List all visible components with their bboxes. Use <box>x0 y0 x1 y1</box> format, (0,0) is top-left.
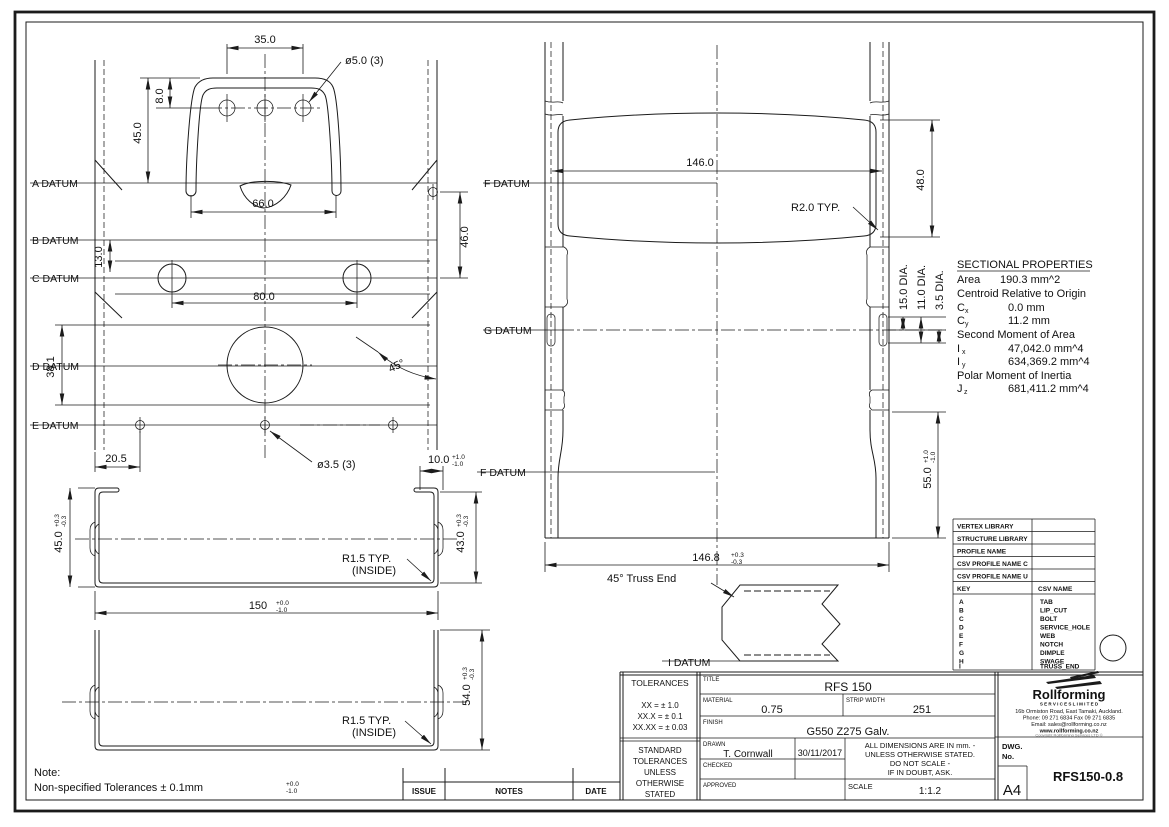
svg-text:I: I <box>957 343 960 355</box>
tolerances-header: TOLERANCES <box>631 678 689 688</box>
svg-text:A: A <box>959 599 964 606</box>
scale-label: SCALE <box>848 782 873 791</box>
svg-text:-0.3: -0.3 <box>463 515 470 527</box>
svg-text:Area: Area <box>957 274 981 286</box>
svg-text:TOLERANCES: TOLERANCES <box>633 757 687 766</box>
svg-text:C: C <box>957 315 965 327</box>
approved-label: APPROVED <box>703 783 737 789</box>
svg-text:R1.5 TYP.: R1.5 TYP. <box>342 553 391 565</box>
title-value: RFS 150 <box>824 680 872 694</box>
vertex-library-table: VERTEX LIBRARY STRUCTURE LIBRARY PROFILE… <box>953 519 1126 671</box>
dim-lip: 10.0 +1.0 -1.0 <box>420 454 465 490</box>
svg-text:-1.0: -1.0 <box>286 788 298 795</box>
logo-subtitle: S E R V I C E S L I M I T E D <box>1040 702 1099 707</box>
truss-end-label: 45° Truss End <box>607 573 676 585</box>
svg-text:G: G <box>959 650 964 657</box>
drawn-label: DRAWN <box>703 742 725 748</box>
svg-text:-1.0: -1.0 <box>452 461 464 468</box>
svg-text:+1.0: +1.0 <box>923 450 930 463</box>
title-label: TITLE <box>703 677 719 683</box>
svg-text:R2.0 TYP.: R2.0 TYP. <box>791 202 840 214</box>
logo-email: Email: sales@rollforming.co.nz <box>1031 722 1107 728</box>
datum-g-label: G DATUM <box>484 325 532 337</box>
svg-text:B: B <box>959 608 964 615</box>
svg-text:Note:: Note: <box>34 767 60 779</box>
svg-text:13.0: 13.0 <box>93 246 105 267</box>
svg-text:Polar Moment of Inertia: Polar Moment of Inertia <box>957 370 1072 382</box>
svg-text:+0.3: +0.3 <box>731 552 744 559</box>
logo-address: 16b Ormiston Road, East Tamaki, Auckland… <box>1015 709 1123 715</box>
svg-text:STATED: STATED <box>645 790 676 799</box>
svg-text:+0.3: +0.3 <box>54 514 61 527</box>
svg-text:CSV PROFILE NAME U: CSV PROFILE NAME U <box>957 574 1028 581</box>
finish-value: G550 Z275 Galv. <box>807 726 890 738</box>
datum-f-top-label: F DATUM <box>484 178 530 190</box>
svg-text:SERVICE_HOLE: SERVICE_HOLE <box>1040 625 1091 632</box>
strip-width-label: STRIP WIDTH <box>846 698 885 704</box>
svg-text:CSV PROFILE NAME C: CSV PROFILE NAME C <box>957 561 1028 568</box>
svg-text:R1.5 TYP.: R1.5 TYP. <box>342 715 391 727</box>
drawn-value: T. Cornwall <box>723 749 772 760</box>
svg-text:DIMPLE: DIMPLE <box>1040 650 1065 657</box>
svg-text:45°: 45° <box>387 357 407 375</box>
formed-profile-view: 146.0 F DATUM R2.0 TYP. 48.0 G DATUM 15.… <box>420 42 946 585</box>
dim-tab-height: 45.0 <box>132 78 148 183</box>
dwg-number: RFS150-0.8 <box>1053 769 1123 784</box>
hole-callout-bottom: ø3.5 (3) <box>270 431 356 471</box>
svg-text:DO NOT SCALE -: DO NOT SCALE - <box>890 759 951 768</box>
svg-text:IF IN DOUBT, ASK.: IF IN DOUBT, ASK. <box>888 768 953 777</box>
svg-text:E: E <box>959 633 964 640</box>
svg-text:XX.X = ± 0.1: XX.X = ± 0.1 <box>637 712 683 721</box>
svg-text:NOTCH: NOTCH <box>1040 642 1063 649</box>
svg-text:XX.XX = ± 0.03: XX.XX = ± 0.03 <box>633 723 688 732</box>
svg-text:D: D <box>959 625 964 632</box>
svg-text:J: J <box>957 383 963 395</box>
svg-text:y: y <box>965 321 969 328</box>
logo-copyright: Copyright Rollforming Services LTD © <box>1035 733 1102 738</box>
svg-text:STRUCTURE LIBRARY: STRUCTURE LIBRARY <box>957 536 1028 543</box>
svg-text:66.0: 66.0 <box>252 198 273 210</box>
company-logo: Rollforming S E R V I C E S L I M I T E … <box>1015 671 1123 738</box>
svg-text:80.0: 80.0 <box>253 291 274 303</box>
svg-text:(INSIDE): (INSIDE) <box>352 565 396 577</box>
svg-text:BOLT: BOLT <box>1040 616 1057 623</box>
svg-text:10.0: 10.0 <box>428 454 449 466</box>
svg-text:-1.0: -1.0 <box>276 607 288 614</box>
finish-label: FINISH <box>703 720 723 726</box>
svg-text:OTHERWISE: OTHERWISE <box>636 779 684 788</box>
scale-value: 1:1.2 <box>919 786 942 797</box>
svg-text:190.3 mm^2: 190.3 mm^2 <box>1000 274 1060 286</box>
service-hole <box>105 325 430 405</box>
svg-text:+0.0: +0.0 <box>276 600 289 607</box>
svg-text:I: I <box>957 356 960 368</box>
svg-text:TRUSS_END: TRUSS_END <box>1040 664 1080 671</box>
svg-text:WEB: WEB <box>1040 633 1055 640</box>
dim-tab-hole-offset: 8.0 <box>140 78 208 108</box>
datum-f-bottom-label: F DATUM <box>480 467 526 479</box>
svg-text:54.0: 54.0 <box>461 684 473 705</box>
svg-text:F: F <box>959 642 963 649</box>
dim-section-height-right: 43.0 +0.3 -0.3 <box>440 492 482 583</box>
dia-mid-label: 11.0 DIA. <box>916 265 928 310</box>
datum-i-label: I DATUM <box>668 657 710 669</box>
datum-c-label: C DATUM <box>32 273 79 285</box>
datum-e-label: E DATUM <box>32 420 78 432</box>
svg-text:48.0: 48.0 <box>915 169 927 190</box>
svg-text:KEY: KEY <box>957 586 971 593</box>
truss-end-detail: 45° Truss End I DATUM <box>607 573 840 669</box>
svg-text:35.0: 35.0 <box>254 34 275 46</box>
section-view-shallow: 45.0 +0.3 -0.3 43.0 +0.3 -0.3 R1.5 TYP. … <box>53 488 482 620</box>
sheet-size: A4 <box>1003 782 1021 799</box>
radius-callout: R2.0 TYP. <box>791 202 878 230</box>
svg-text:150: 150 <box>249 600 267 612</box>
svg-text:0.0 mm: 0.0 mm <box>1008 302 1045 314</box>
svg-text:+0.3: +0.3 <box>462 667 469 680</box>
logo-phone: Phone: 09 271 6834 Fax 09 271 6835 <box>1023 716 1115 722</box>
sheet-border <box>15 12 1154 811</box>
svg-text:STANDARD: STANDARD <box>638 746 682 755</box>
dim-a-to-c: 46.0 <box>429 184 472 278</box>
dim-bottom-height: 55.0 +1.0 -1.0 <box>892 412 946 538</box>
dia-inner-label: 3.5 DIA. <box>934 270 946 310</box>
svg-text:TAB: TAB <box>1040 599 1053 606</box>
issue-header: ISSUE <box>412 787 437 796</box>
section-view-deep: 54.0 +0.3 -0.3 R1.5 TYP. (INSIDE) <box>62 630 490 750</box>
svg-text:(INSIDE): (INSIDE) <box>352 727 396 739</box>
dim-bolt-spacing: 80.0 <box>172 291 357 308</box>
svg-text:PROFILE NAME: PROFILE NAME <box>957 549 1007 556</box>
svg-text:55.0: 55.0 <box>922 467 934 488</box>
angle-dim: 45° <box>356 337 436 379</box>
svg-text:I: I <box>959 664 961 671</box>
svg-text:-0.3: -0.3 <box>469 668 476 680</box>
props-title: SECTIONAL PROPERTIES <box>957 259 1093 271</box>
svg-text:UNLESS OTHERWISE STATED.: UNLESS OTHERWISE STATED. <box>865 750 975 759</box>
flat-pattern-view: A DATUM B DATUM C DATUM D DATUM E DATUM … <box>30 34 471 472</box>
svg-text:VERTEX LIBRARY: VERTEX LIBRARY <box>957 524 1014 531</box>
general-note: Note: Non-specified Tolerances ± 0.1mm +… <box>34 767 299 795</box>
svg-text:45.0: 45.0 <box>132 122 144 143</box>
svg-text:-0.3: -0.3 <box>731 559 743 566</box>
logo-name: Rollforming <box>1033 687 1106 702</box>
svg-text:+0.3: +0.3 <box>456 514 463 527</box>
issue-strip: ISSUE NOTES DATE <box>403 768 620 800</box>
dim-b-to-c: 13.0 <box>93 240 110 272</box>
svg-text:z: z <box>964 389 968 396</box>
svg-text:C: C <box>959 616 964 623</box>
svg-text:y: y <box>962 362 966 369</box>
datum-b-label: B DATUM <box>32 235 78 247</box>
svg-text:Second Moment of Area: Second Moment of Area <box>957 329 1076 341</box>
drawn-date: 30/11/2017 <box>798 748 842 758</box>
svg-text:8.0: 8.0 <box>154 88 166 103</box>
svg-text:38.1: 38.1 <box>45 356 57 377</box>
svg-text:47,042.0 mm^4: 47,042.0 mm^4 <box>1008 343 1083 355</box>
svg-text:Non-specified Tolerances ± 0.1: Non-specified Tolerances ± 0.1mm <box>34 782 203 794</box>
svg-text:ALL DIMENSIONS ARE IN mm. -: ALL DIMENSIONS ARE IN mm. - <box>865 741 976 750</box>
svg-text:681,411.2 mm^4: 681,411.2 mm^4 <box>1008 383 1089 395</box>
dimple-dia-dims: 15.0 DIA. 11.0 DIA. 3.5 DIA. <box>888 264 946 343</box>
svg-text:46.0: 46.0 <box>459 226 471 247</box>
svg-text:UNLESS: UNLESS <box>644 768 676 777</box>
dim-tab-width: 66.0 <box>191 195 336 218</box>
svg-text:Centroid Relative to Origin: Centroid Relative to Origin <box>957 288 1086 300</box>
svg-text:11.2 mm: 11.2 mm <box>1008 315 1050 327</box>
radius-callout-shallow: R1.5 TYP. (INSIDE) <box>342 553 431 581</box>
dim-section-width: 150 +0.0 -1.0 <box>95 591 438 620</box>
tab-holes <box>208 94 322 122</box>
material-value: 0.75 <box>761 704 782 716</box>
datum-a-label: A DATUM <box>32 178 78 190</box>
svg-text:43.0: 43.0 <box>455 531 467 552</box>
dim-edge-hole: 20.5 <box>95 431 140 472</box>
svg-text:LIP_CUT: LIP_CUT <box>1040 608 1067 615</box>
svg-text:ø3.5 (3): ø3.5 (3) <box>317 459 356 471</box>
svg-text:634,369.2 mm^4: 634,369.2 mm^4 <box>1008 356 1090 368</box>
svg-text:20.5: 20.5 <box>105 453 126 465</box>
svg-text:ø5.0 (3): ø5.0 (3) <box>345 55 384 67</box>
radius-callout-deep: R1.5 TYP. (INSIDE) <box>342 715 431 744</box>
svg-text:-0.3: -0.3 <box>61 515 68 527</box>
date-header: DATE <box>585 787 607 796</box>
svg-text:+1.0: +1.0 <box>452 454 465 461</box>
svg-text:146.8: 146.8 <box>692 552 720 564</box>
strip-width-value: 251 <box>913 704 931 716</box>
drawing-sheet: A DATUM B DATUM C DATUM D DATUM E DATUM … <box>0 0 1169 827</box>
dia-outer-label: 15.0 DIA. <box>898 264 910 310</box>
svg-text:-1.0: -1.0 <box>930 451 937 463</box>
svg-text:x: x <box>962 349 966 356</box>
dim-section-height-deep: 54.0 +0.3 -0.3 <box>440 630 490 750</box>
svg-text:45.0: 45.0 <box>53 531 65 552</box>
svg-text:146.0: 146.0 <box>686 157 714 169</box>
material-label: MATERIAL <box>703 698 733 704</box>
dim-section-height-left: 45.0 +0.3 -0.3 <box>53 488 95 587</box>
svg-text:No.: No. <box>1002 752 1014 761</box>
notes-header: NOTES <box>495 787 523 796</box>
checked-label: CHECKED <box>703 763 733 769</box>
dwg-label: DWG. <box>1002 742 1022 751</box>
engineering-drawing-canvas: A DATUM B DATUM C DATUM D DATUM E DATUM … <box>0 0 1169 827</box>
svg-text:+0.0: +0.0 <box>286 781 299 788</box>
svg-text:XX = ± 1.0: XX = ± 1.0 <box>641 701 679 710</box>
sectional-properties: SECTIONAL PROPERTIES Area 190.3 mm^2 Cen… <box>957 259 1093 396</box>
revision-circle <box>1100 635 1126 661</box>
svg-text:C: C <box>957 302 965 314</box>
svg-text:x: x <box>965 308 969 315</box>
svg-text:CSV NAME: CSV NAME <box>1038 586 1073 593</box>
